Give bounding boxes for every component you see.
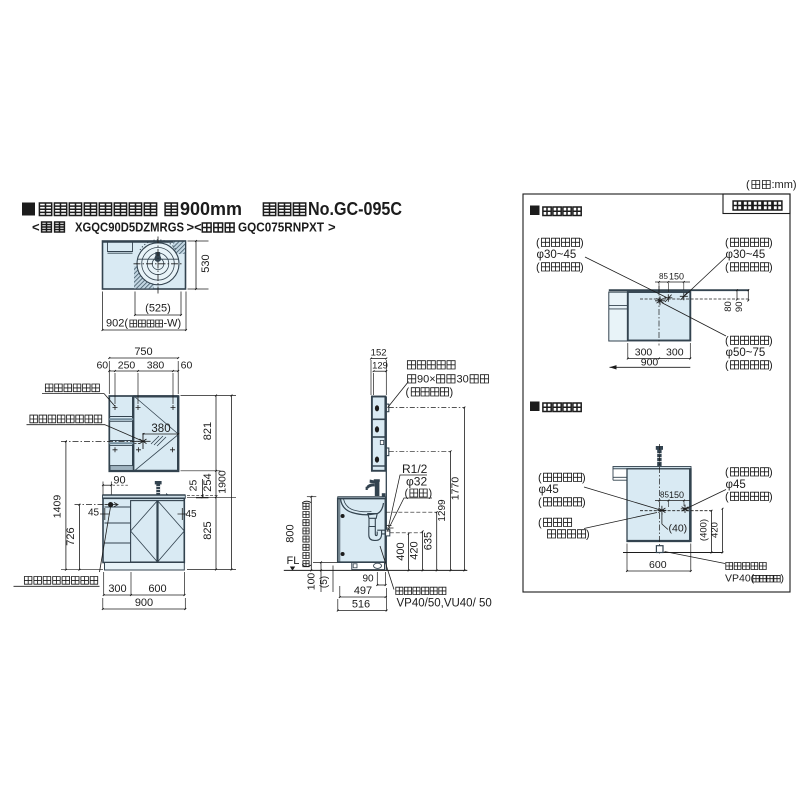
svg-text:(5): (5)	[319, 576, 330, 588]
svg-text:): )	[580, 237, 584, 249]
svg-text:(: (	[725, 360, 729, 372]
svg-text:900mm: 900mm	[180, 199, 242, 219]
svg-text:): )	[769, 467, 773, 479]
svg-text:(: (	[746, 179, 750, 191]
svg-text:φ45: φ45	[539, 484, 559, 496]
svg-text:1299: 1299	[437, 499, 448, 522]
svg-text:902(: 902(	[106, 318, 128, 330]
svg-text:250: 250	[118, 360, 136, 372]
svg-text:(: (	[725, 335, 729, 347]
svg-text:): )	[302, 500, 313, 503]
svg-text:400: 400	[395, 542, 407, 560]
svg-text:>: >	[328, 220, 336, 235]
svg-text:900: 900	[641, 357, 659, 369]
svg-text:420: 420	[709, 522, 720, 538]
svg-text:25: 25	[188, 480, 200, 492]
svg-text:(: (	[538, 497, 542, 509]
svg-text:150: 150	[669, 490, 684, 500]
svg-text:300: 300	[108, 583, 126, 595]
svg-text:600: 600	[649, 559, 667, 571]
svg-text:-W): -W)	[164, 318, 182, 330]
svg-text:516: 516	[352, 599, 370, 611]
svg-text:1900: 1900	[217, 470, 229, 494]
svg-text:φ50~75: φ50~75	[726, 347, 766, 359]
svg-text:150: 150	[669, 272, 684, 282]
svg-text:(: (	[538, 472, 542, 484]
svg-text:): )	[769, 237, 773, 249]
svg-text:(400): (400)	[699, 519, 710, 541]
svg-text:<: <	[32, 220, 40, 235]
svg-text:φ30~45: φ30~45	[726, 249, 766, 261]
svg-text:><: ><	[187, 220, 203, 235]
svg-text:(: (	[725, 491, 729, 503]
svg-text:(: (	[725, 467, 729, 479]
svg-text:(: (	[725, 237, 729, 249]
svg-text:φ32: φ32	[406, 475, 427, 489]
svg-text:530: 530	[200, 254, 212, 272]
svg-text:254: 254	[202, 473, 214, 491]
svg-text:726: 726	[65, 527, 77, 545]
svg-text:1409: 1409	[52, 495, 64, 519]
svg-text:): )	[582, 472, 586, 484]
svg-text:750: 750	[134, 346, 152, 358]
svg-text:300: 300	[666, 347, 684, 359]
svg-text:60: 60	[181, 360, 193, 372]
svg-text:φ30~45: φ30~45	[537, 249, 577, 261]
svg-text:): )	[769, 262, 773, 274]
svg-text:(40): (40)	[669, 523, 688, 535]
svg-text:600: 600	[148, 583, 166, 595]
svg-text:30: 30	[457, 374, 469, 386]
svg-text::mm): :mm)	[772, 179, 797, 191]
svg-text:): )	[586, 529, 590, 541]
svg-text:): )	[580, 262, 584, 274]
svg-text:90: 90	[362, 574, 374, 585]
svg-text:(: (	[725, 262, 729, 274]
svg-text:VP40/50,VU40/ 50: VP40/50,VU40/ 50	[397, 598, 492, 610]
svg-text:(: (	[538, 517, 542, 529]
svg-text:635: 635	[423, 532, 435, 550]
svg-text:XGQC90D5DZMRGS: XGQC90D5DZMRGS	[75, 220, 184, 235]
svg-text:129: 129	[372, 361, 388, 372]
svg-text:No.GC-095C: No.GC-095C	[308, 199, 402, 219]
svg-text:): )	[769, 335, 773, 347]
svg-text:): )	[769, 360, 773, 372]
svg-text:VP40(: VP40(	[725, 573, 755, 585]
svg-text:(: (	[536, 237, 540, 249]
svg-text:45: 45	[88, 508, 100, 519]
svg-text:): )	[450, 387, 454, 399]
svg-text:60: 60	[96, 360, 108, 372]
svg-text:380: 380	[151, 423, 170, 435]
svg-text:): )	[781, 573, 785, 585]
svg-text:800: 800	[285, 524, 297, 542]
svg-text:497: 497	[354, 585, 372, 597]
svg-text:420: 420	[409, 541, 421, 559]
svg-text:45: 45	[185, 509, 197, 520]
svg-text:GQC075RNPXT: GQC075RNPXT	[238, 220, 324, 235]
svg-text:100: 100	[306, 573, 318, 591]
svg-text:): )	[582, 497, 586, 509]
svg-text:(525): (525)	[145, 303, 171, 315]
svg-text:1770: 1770	[450, 477, 462, 501]
svg-text:90×: 90×	[417, 374, 436, 386]
svg-text:φ45: φ45	[726, 479, 746, 491]
svg-text:85: 85	[659, 272, 668, 281]
svg-text:90: 90	[113, 475, 125, 487]
svg-text:821: 821	[202, 422, 214, 440]
svg-text:80: 80	[723, 301, 734, 312]
svg-text:(: (	[536, 262, 540, 274]
svg-text:380: 380	[147, 360, 165, 372]
svg-text:90: 90	[734, 302, 745, 313]
svg-text:900: 900	[135, 597, 153, 609]
svg-text:825: 825	[202, 521, 214, 539]
svg-text:): )	[769, 491, 773, 503]
svg-text:(: (	[406, 387, 410, 399]
svg-text:FL: FL	[287, 555, 300, 567]
svg-text:152: 152	[371, 348, 387, 359]
